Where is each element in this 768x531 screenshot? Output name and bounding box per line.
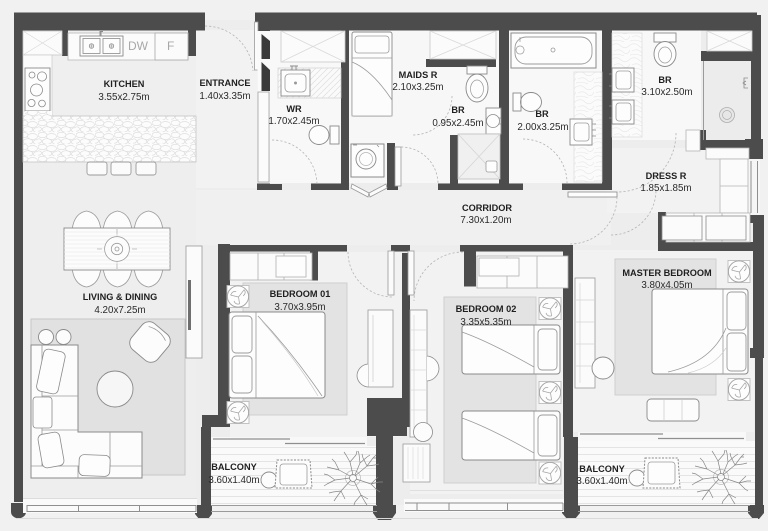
svg-text:0.95x2.45m: 0.95x2.45m xyxy=(432,118,483,129)
svg-text:2.00x3.25m: 2.00x3.25m xyxy=(517,122,568,133)
svg-text:BR: BR xyxy=(451,105,465,115)
svg-text:BALCONY: BALCONY xyxy=(579,464,624,474)
svg-text:LIVING & DINING: LIVING & DINING xyxy=(83,292,158,302)
svg-text:DW: DW xyxy=(128,39,149,53)
svg-text:BR: BR xyxy=(658,75,672,85)
svg-text:1.70x2.45m: 1.70x2.45m xyxy=(268,116,319,127)
svg-text:3.55x2.75m: 3.55x2.75m xyxy=(98,92,149,103)
svg-text:CORRIDOR: CORRIDOR xyxy=(462,203,512,213)
svg-text:3.60x1.40m: 3.60x1.40m xyxy=(208,475,259,486)
svg-text:F: F xyxy=(167,39,174,53)
svg-text:WR: WR xyxy=(286,104,302,114)
svg-text:3.60x1.40m: 3.60x1.40m xyxy=(576,476,627,487)
svg-text:2.10x3.25m: 2.10x3.25m xyxy=(392,82,443,93)
svg-text:BR: BR xyxy=(535,109,549,119)
svg-text:BEDROOM 01: BEDROOM 01 xyxy=(270,289,331,299)
svg-text:ENTRANCE: ENTRANCE xyxy=(199,78,250,88)
svg-text:BEDROOM 02: BEDROOM 02 xyxy=(456,304,517,314)
svg-text:4.20x7.25m: 4.20x7.25m xyxy=(94,305,145,316)
svg-text:3.80x4.05m: 3.80x4.05m xyxy=(641,280,692,291)
svg-text:3.70x3.95m: 3.70x3.95m xyxy=(274,302,325,313)
svg-text:1.85x1.85m: 1.85x1.85m xyxy=(640,183,691,194)
svg-text:MAIDS R: MAIDS R xyxy=(399,70,438,80)
svg-text:7.30x1.20m: 7.30x1.20m xyxy=(460,215,511,226)
svg-text:3.35x5.35m: 3.35x5.35m xyxy=(460,317,511,328)
svg-text:KITCHEN: KITCHEN xyxy=(104,79,145,89)
svg-text:MASTER BEDROOM: MASTER BEDROOM xyxy=(622,268,712,278)
svg-text:DRESS R: DRESS R xyxy=(646,171,687,181)
svg-text:BALCONY: BALCONY xyxy=(211,462,256,472)
svg-text:3.10x2.50m: 3.10x2.50m xyxy=(641,87,692,98)
svg-text:1.40x3.35m: 1.40x3.35m xyxy=(199,91,250,102)
